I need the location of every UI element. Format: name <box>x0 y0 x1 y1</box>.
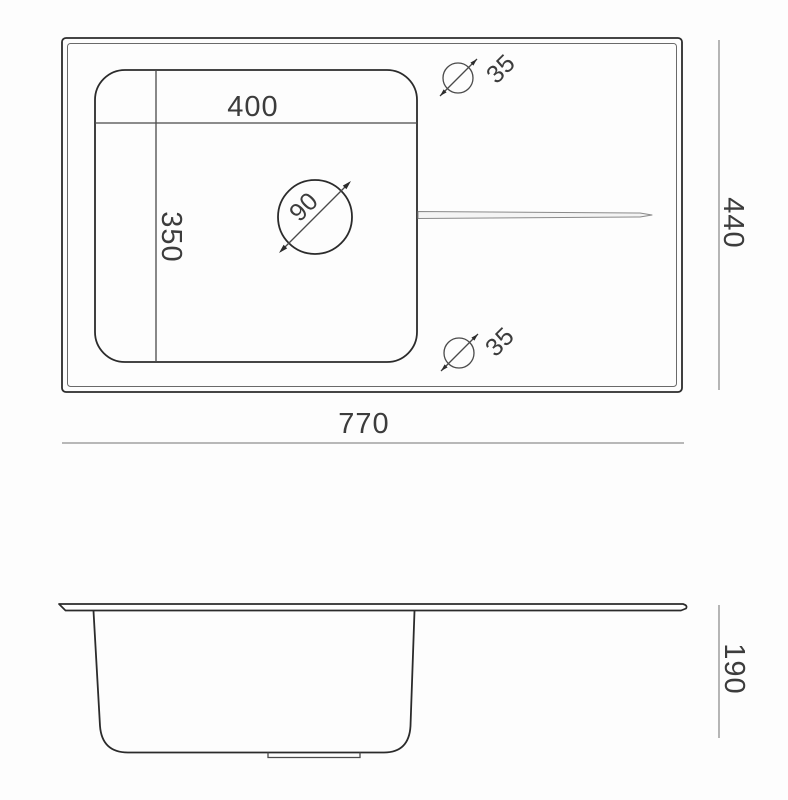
tap-hole-top-label: 35 <box>481 49 521 89</box>
sink-technical-drawing: 90 35 35 400 350 440 770 <box>0 0 788 800</box>
tap-hole-top-diameter-line <box>440 59 477 96</box>
drawing-svg: 90 35 35 400 350 440 770 <box>0 0 788 800</box>
drainboard-groove <box>418 212 652 219</box>
side-bowl-profile <box>94 611 415 753</box>
overall-depth-label: 440 <box>717 197 749 248</box>
drain-diameter-line <box>281 183 349 251</box>
bowl-width-label: 400 <box>227 91 278 123</box>
overall-width-label: 770 <box>338 408 389 440</box>
tap-hole-bottom-label: 35 <box>480 322 520 362</box>
drain-diameter-label: 90 <box>284 187 324 227</box>
top-view: 90 35 35 400 350 440 770 <box>62 38 749 443</box>
bowl-depth-label: 350 <box>155 211 187 262</box>
side-rim-slab <box>59 604 687 611</box>
height-label: 190 <box>718 643 750 694</box>
tap-hole-bottom-diameter-line <box>441 334 478 371</box>
side-view: 190 <box>59 604 750 758</box>
